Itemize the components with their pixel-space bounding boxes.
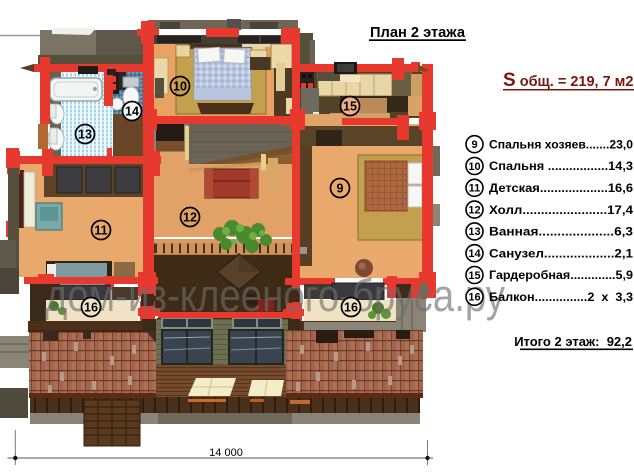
svg-text:План 2 этажа: План 2 этажа <box>370 24 466 41</box>
svg-text:12: 12 <box>183 210 197 224</box>
svg-text:14 000: 14 000 <box>209 447 243 459</box>
svg-text:14: 14 <box>125 104 139 118</box>
svg-text:14: 14 <box>468 248 481 260</box>
svg-text:16: 16 <box>84 300 98 314</box>
svg-text:15: 15 <box>468 270 480 282</box>
svg-text:11: 11 <box>469 183 481 195</box>
svg-text:Спальня .................14,3: Спальня .................14,3 <box>489 159 633 173</box>
svg-text:Итого 2 этаж: 92,2: Итого 2 этаж: 92,2 <box>514 334 632 349</box>
svg-text:10: 10 <box>468 161 480 173</box>
svg-text:Детская...................16,6: Детская...................16,6 <box>489 181 633 195</box>
svg-text:10: 10 <box>173 79 187 93</box>
svg-text:16: 16 <box>468 292 480 304</box>
svg-text:Холл.......................17,: Холл.......................17,4 <box>489 203 633 217</box>
svg-text:15: 15 <box>343 99 357 113</box>
svg-text:дом-из-клееного-бруса.ру: дом-из-клееного-бруса.ру <box>45 270 505 321</box>
svg-text:Балкон...............2 х 3,3: Балкон...............2 х 3,3 <box>489 290 633 304</box>
svg-text:16: 16 <box>344 300 358 314</box>
svg-text:11: 11 <box>94 223 107 237</box>
svg-text:9: 9 <box>337 181 344 195</box>
svg-text:13: 13 <box>468 226 480 238</box>
svg-text:Ванная....................6,3: Ванная....................6,3 <box>489 225 633 239</box>
svg-text:Гардеробная.............5,9: Гардеробная.............5,9 <box>489 268 633 282</box>
svg-text:Санузел...................2,1: Санузел...................2,1 <box>489 246 633 260</box>
svg-text:9: 9 <box>471 139 477 151</box>
svg-text:S общ. = 219, 7 м2: S общ. = 219, 7 м2 <box>503 70 633 91</box>
svg-text:13: 13 <box>78 127 92 141</box>
svg-text:Спальня хозяев.......23,0: Спальня хозяев.......23,0 <box>489 137 633 151</box>
svg-text:12: 12 <box>468 204 480 216</box>
